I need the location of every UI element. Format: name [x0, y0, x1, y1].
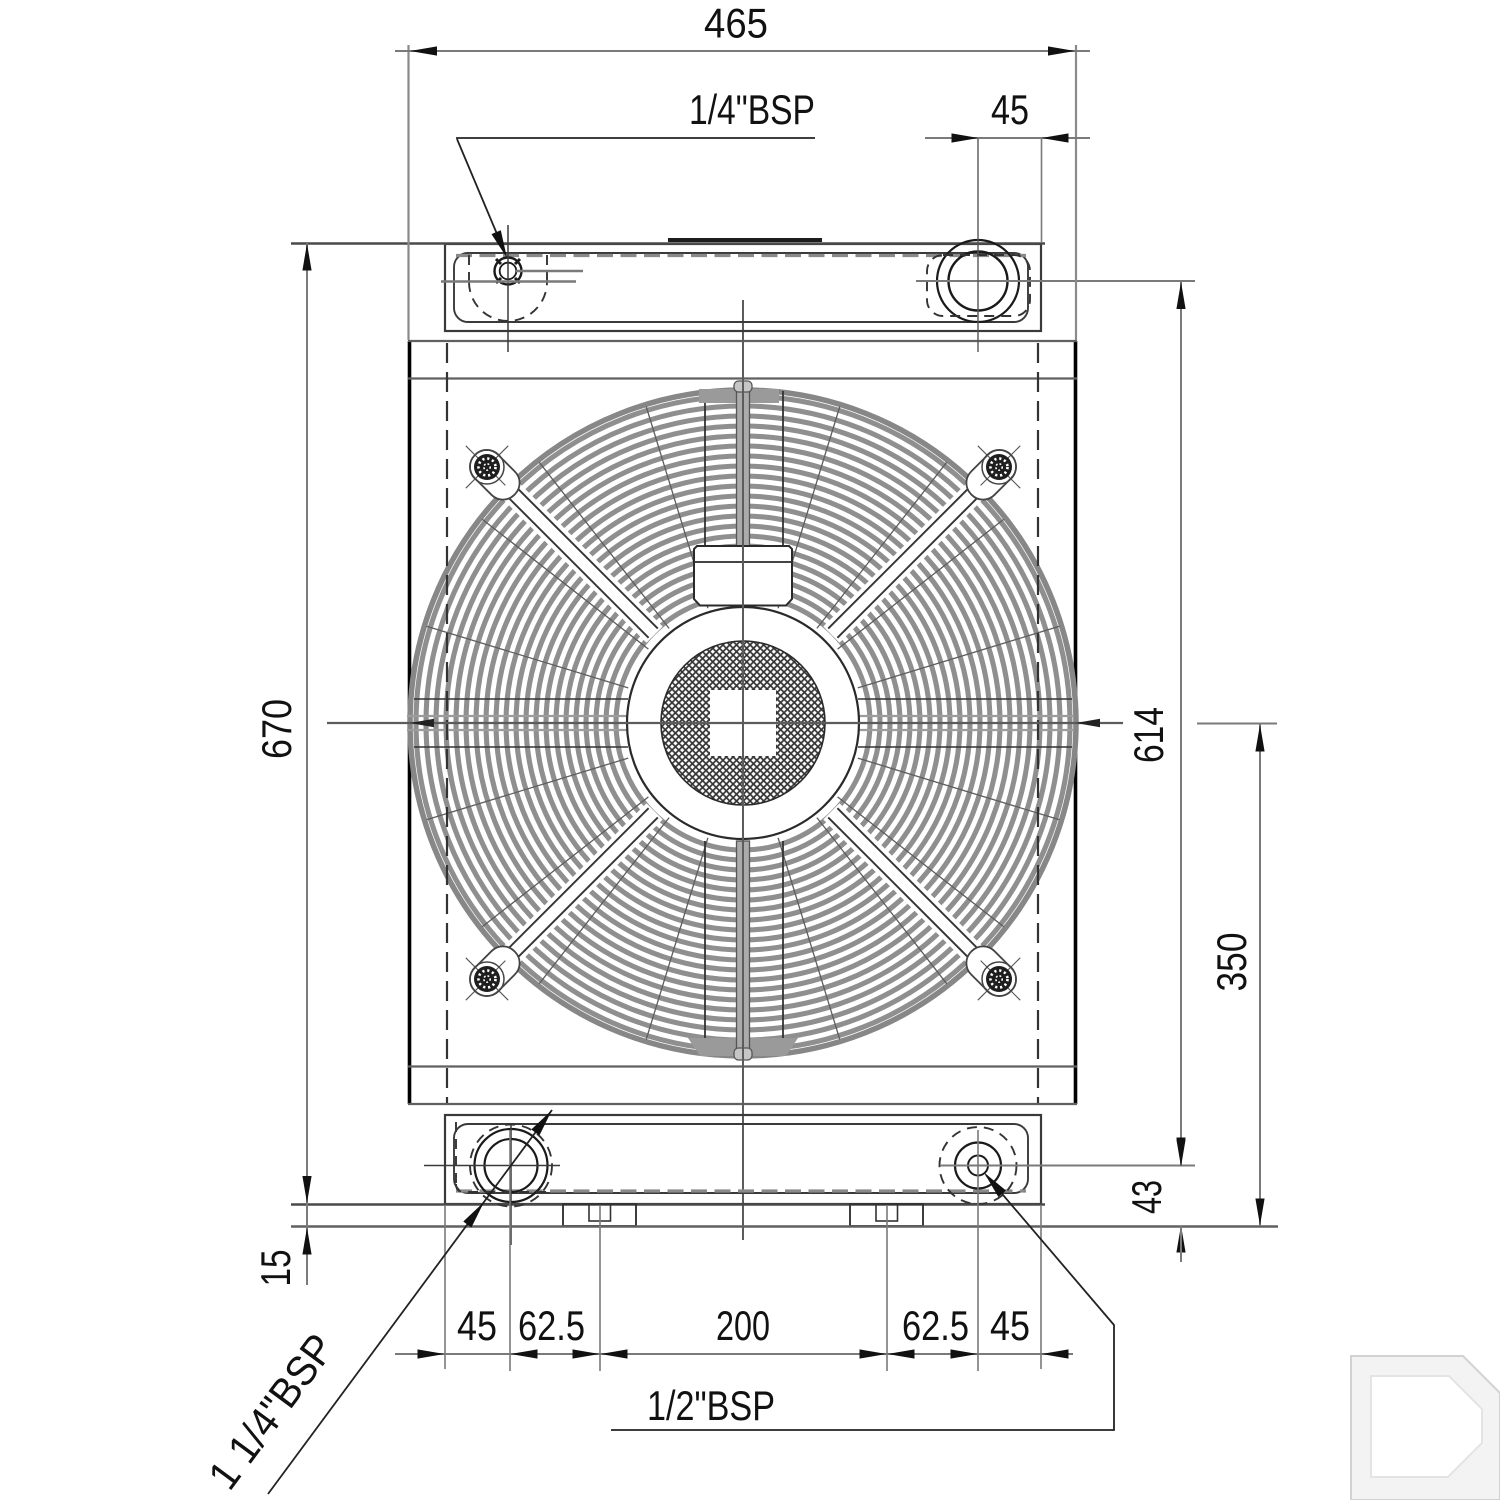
svg-text:62.5: 62.5 [902, 1302, 969, 1349]
svg-text:1/4"BSP: 1/4"BSP [689, 86, 815, 133]
svg-text:45: 45 [991, 86, 1029, 133]
svg-text:15: 15 [252, 1250, 299, 1287]
svg-text:1/2"BSP: 1/2"BSP [647, 1382, 775, 1429]
svg-text:200: 200 [716, 1302, 770, 1349]
svg-text:45: 45 [990, 1302, 1030, 1349]
svg-text:62.5: 62.5 [518, 1302, 585, 1349]
svg-text:43: 43 [1123, 1180, 1170, 1214]
svg-text:670: 670 [253, 699, 300, 759]
svg-text:614: 614 [1125, 707, 1172, 763]
svg-text:45: 45 [457, 1302, 497, 1349]
svg-text:350: 350 [1208, 933, 1255, 992]
svg-text:465: 465 [704, 0, 768, 47]
